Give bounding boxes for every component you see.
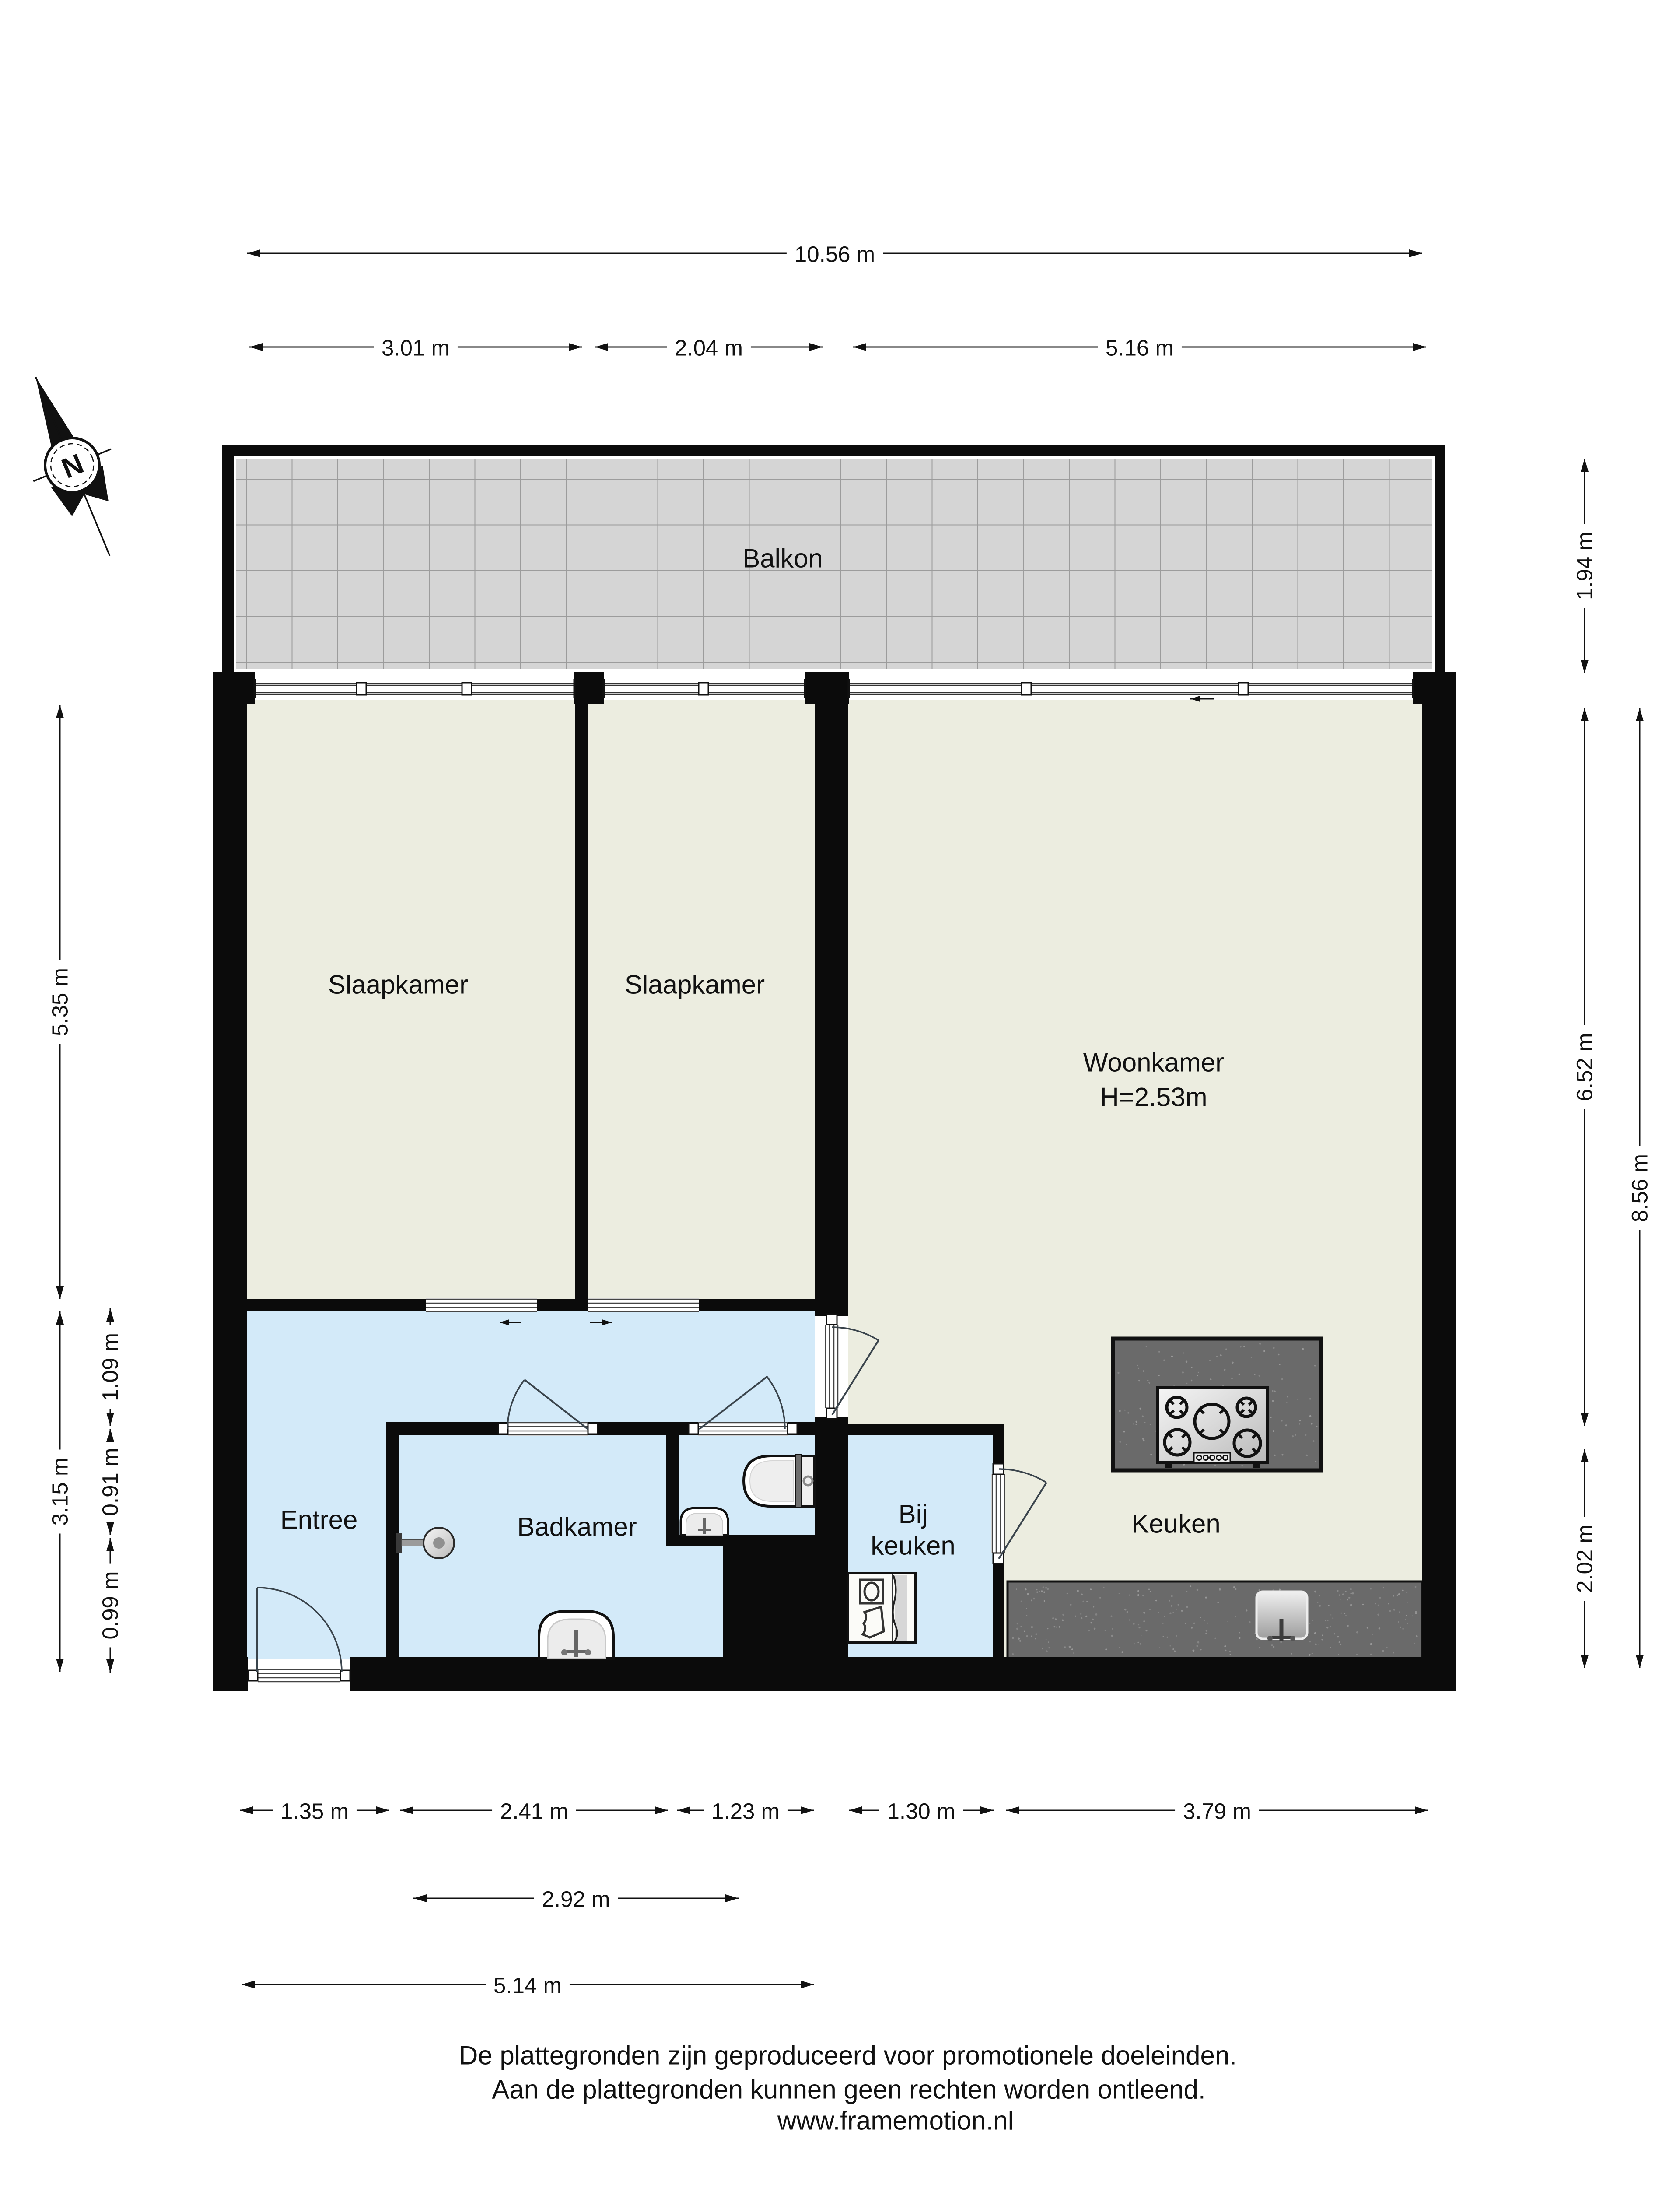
svg-text:Slaapkamer: Slaapkamer xyxy=(328,970,468,999)
svg-text:2.41 m: 2.41 m xyxy=(500,1799,568,1824)
svg-text:2.92 m: 2.92 m xyxy=(542,1887,610,1912)
svg-text:Entree: Entree xyxy=(280,1505,358,1535)
svg-text:Badkamer: Badkamer xyxy=(517,1512,637,1542)
svg-text:Keuken: Keuken xyxy=(1131,1509,1221,1539)
svg-text:2.04 m: 2.04 m xyxy=(675,336,743,361)
svg-text:1.94 m: 1.94 m xyxy=(1572,532,1597,600)
svg-text:keuken: keuken xyxy=(871,1531,955,1560)
svg-text:Aan de plattegronden kunnen ge: Aan de plattegronden kunnen geen rechten… xyxy=(492,2075,1205,2104)
svg-text:5.35 m: 5.35 m xyxy=(48,968,73,1036)
svg-text:1.09 m: 1.09 m xyxy=(98,1333,123,1401)
svg-text:Balkon: Balkon xyxy=(742,544,822,573)
svg-text:H=2.53m: H=2.53m xyxy=(1100,1083,1207,1112)
svg-text:Woonkamer: Woonkamer xyxy=(1083,1048,1224,1077)
svg-text:5.16 m: 5.16 m xyxy=(1106,336,1174,361)
svg-text:10.56 m: 10.56 m xyxy=(794,242,875,267)
svg-text:2.02 m: 2.02 m xyxy=(1572,1525,1597,1593)
svg-text:1.35 m: 1.35 m xyxy=(280,1799,349,1824)
svg-text:1.23 m: 1.23 m xyxy=(711,1799,780,1824)
svg-text:0.99 m: 0.99 m xyxy=(98,1571,123,1640)
svg-text:Bij: Bij xyxy=(899,1500,928,1529)
svg-text:3.01 m: 3.01 m xyxy=(381,336,450,361)
svg-text:Slaapkamer: Slaapkamer xyxy=(625,970,765,999)
svg-text:6.52 m: 6.52 m xyxy=(1572,1033,1597,1101)
svg-text:5.14 m: 5.14 m xyxy=(493,1973,562,1998)
svg-text:8.56 m: 8.56 m xyxy=(1627,1154,1652,1222)
svg-text:3.79 m: 3.79 m xyxy=(1183,1799,1251,1824)
svg-text:0.91 m: 0.91 m xyxy=(98,1448,123,1516)
svg-text:3.15 m: 3.15 m xyxy=(48,1458,73,1526)
svg-text:1.30 m: 1.30 m xyxy=(887,1799,955,1824)
svg-text:De plattegronden zijn geproduc: De plattegronden zijn geproduceerd voor … xyxy=(459,2041,1237,2070)
svg-text:www.framemotion.nl: www.framemotion.nl xyxy=(777,2106,1014,2135)
